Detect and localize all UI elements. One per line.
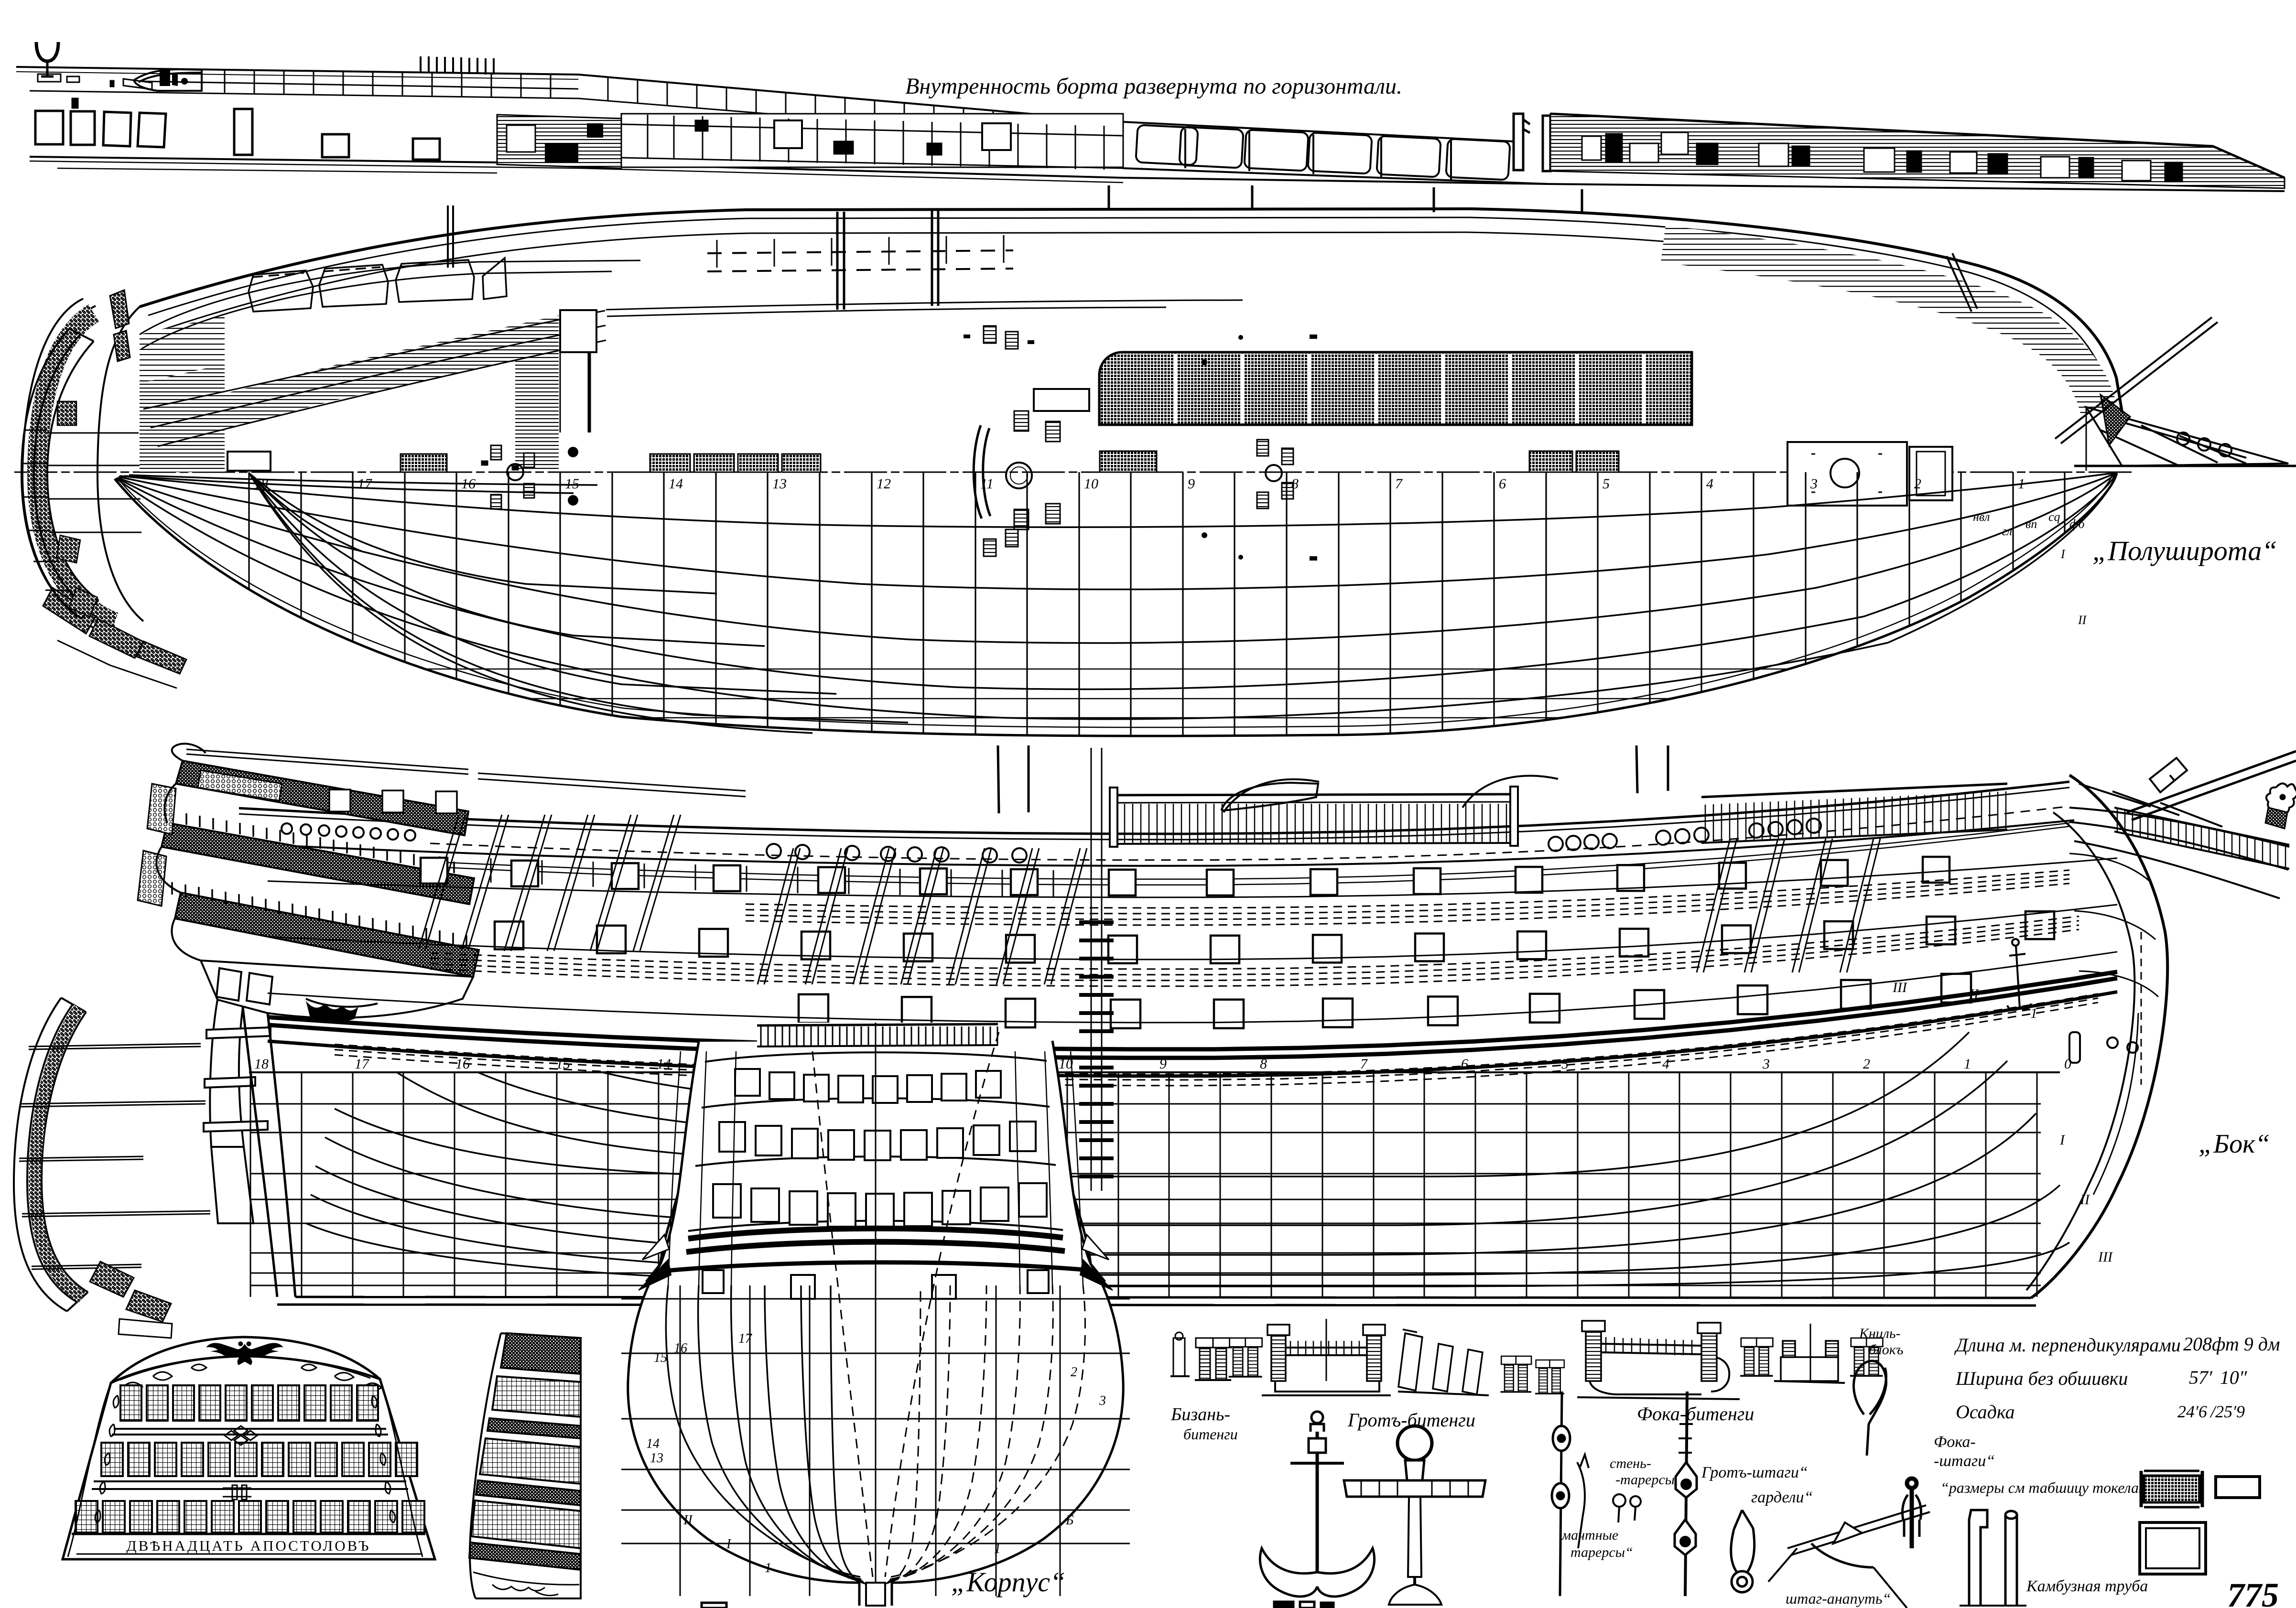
svg-text:18: 18: [254, 1056, 269, 1072]
svg-text:Б: Б: [1065, 1513, 1074, 1528]
svg-text:„Бок“: „Бок“: [2199, 1129, 2270, 1159]
svg-text:3: 3: [1810, 476, 1818, 492]
svg-text:гардели“: гардели“: [1751, 1489, 1813, 1506]
svg-text:57′ 10″: 57′ 10″: [2189, 1367, 2248, 1388]
svg-text:1: 1: [2018, 476, 2025, 492]
svg-text:Ширина без обшивки: Ширина без обшивки: [1955, 1368, 2128, 1389]
svg-text:10: 10: [1084, 476, 1098, 492]
svg-text:4: 4: [1662, 1056, 1669, 1072]
svg-text:Осадка: Осадка: [1956, 1401, 2015, 1423]
svg-text:6: 6: [1499, 476, 1506, 492]
svg-text:17: 17: [357, 476, 373, 492]
svg-text:1: 1: [1964, 1056, 1971, 1072]
svg-text:“размеры см табшицу токелажа: “размеры см табшицу токелажа: [1940, 1479, 2160, 1496]
svg-text:Камбузная труба: Камбузная труба: [2026, 1577, 2148, 1595]
svg-text:8: 8: [1260, 1056, 1267, 1072]
svg-text:8: 8: [1291, 476, 1299, 492]
svg-text:I: I: [2060, 547, 2066, 561]
svg-text:208фт 9 дм: 208фт 9 дм: [2183, 1333, 2280, 1355]
svg-text:15: 15: [565, 476, 579, 492]
svg-text:мачтные: мачтные: [1561, 1527, 1618, 1543]
svg-text:сq: сq: [2048, 510, 2060, 524]
svg-text:18: 18: [254, 476, 268, 492]
svg-text:15: 15: [654, 1350, 667, 1365]
svg-text:Внутренность борта развернута: Внутренность борта развернута по горизон…: [905, 74, 1402, 99]
svg-text:17: 17: [355, 1056, 370, 1072]
svg-text:Книль-: Книль-: [1859, 1326, 1901, 1341]
svg-text:11: 11: [980, 476, 994, 492]
svg-text:16: 16: [674, 1341, 687, 1356]
svg-text:битенги: битенги: [1183, 1425, 1238, 1443]
svg-text:7: 7: [1395, 476, 1403, 492]
svg-text:1: 1: [2030, 1005, 2037, 1021]
svg-text:II: II: [1969, 986, 1980, 1002]
svg-text:Фока-: Фока-: [1934, 1433, 1976, 1451]
svg-text:2: 2: [1863, 1056, 1870, 1072]
svg-text:15: 15: [556, 1056, 570, 1072]
svg-text:775: 775: [2227, 1576, 2279, 1608]
svg-text:7: 7: [1360, 1056, 1368, 1072]
svg-text:17: 17: [738, 1331, 752, 1346]
svg-text:Фока-битенги: Фока-битенги: [1637, 1403, 1754, 1425]
svg-text:фб: фб: [2069, 517, 2085, 531]
svg-text:гл: гл: [2002, 524, 2012, 538]
svg-text:1: 1: [765, 1561, 771, 1576]
svg-text:Длина м. перпендикулярами: Длина м. перпендикулярами: [1954, 1334, 2181, 1356]
svg-text:3: 3: [1099, 1393, 1106, 1408]
svg-text:3: 3: [1762, 1056, 1770, 1072]
svg-text:III: III: [1892, 980, 1908, 995]
svg-text:I: I: [726, 1537, 732, 1552]
svg-text:14: 14: [669, 476, 683, 492]
svg-text:„Корпус“: „Корпус“: [951, 1566, 1065, 1597]
svg-text:13: 13: [650, 1451, 663, 1466]
svg-text:блокъ: блокъ: [1869, 1342, 1903, 1358]
svg-text:ДВѢНАДЦАТЬ АПОСТОЛОВЪ: ДВѢНАДЦАТЬ АПОСТОЛОВЪ: [127, 1537, 371, 1554]
svg-text:13: 13: [772, 476, 787, 492]
svg-text:2: 2: [1914, 476, 1921, 492]
svg-text:16: 16: [455, 1056, 470, 1072]
svg-text:-штаги“: -штаги“: [1934, 1452, 1995, 1470]
svg-text:II: II: [683, 1513, 693, 1528]
svg-text:6: 6: [1461, 1056, 1468, 1072]
svg-text:III: III: [2098, 1249, 2113, 1265]
svg-text:„Полуширота“: „Полуширота“: [2092, 535, 2277, 566]
svg-text:14: 14: [646, 1436, 660, 1451]
svg-text:II: II: [2078, 613, 2087, 627]
svg-text:16: 16: [461, 476, 476, 492]
svg-text:штаг-анапуть“: штаг-анапуть“: [1786, 1590, 1891, 1607]
svg-text:тарерсы“: тарерсы“: [1570, 1544, 1633, 1560]
svg-text:-тарерсы: -тарерсы: [1615, 1472, 1675, 1488]
svg-text:5: 5: [1561, 1056, 1569, 1072]
svg-text:стень-: стень-: [1610, 1456, 1651, 1471]
svg-text:5: 5: [1603, 476, 1610, 492]
svg-text:9: 9: [1188, 476, 1195, 492]
svg-text:Гротъ-штаги“: Гротъ-штаги“: [1701, 1464, 1808, 1481]
svg-text:II: II: [2079, 1192, 2090, 1208]
svg-text:1: 1: [994, 1542, 1001, 1556]
svg-text:24′6 /25′9: 24′6 /25′9: [2177, 1402, 2245, 1421]
svg-text:2: 2: [1071, 1365, 1077, 1380]
svg-text:4: 4: [1706, 476, 1713, 492]
svg-text:Бизань-: Бизань-: [1170, 1404, 1230, 1425]
svg-text:14: 14: [657, 1056, 671, 1072]
svg-text:нвл: нвл: [1973, 510, 1990, 524]
svg-text:12: 12: [877, 476, 891, 492]
svg-text:вп: вп: [2025, 517, 2037, 531]
svg-text:9: 9: [1159, 1056, 1167, 1072]
